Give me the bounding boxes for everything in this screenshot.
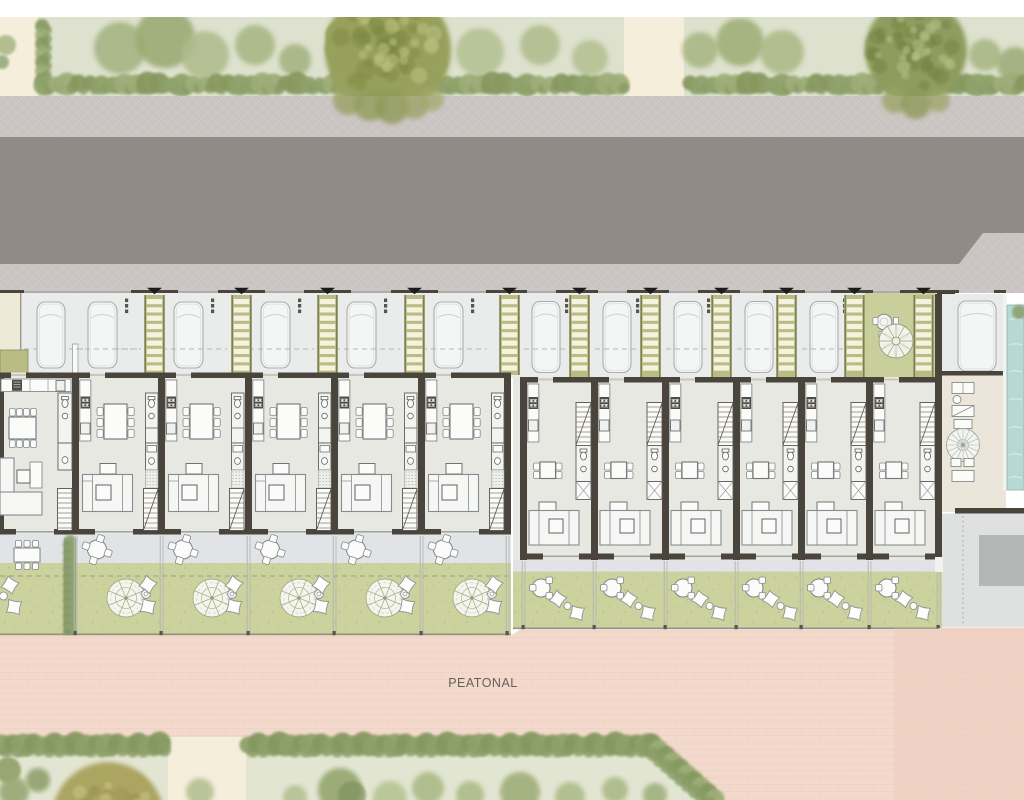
svg-text:PEATONAL: PEATONAL <box>448 676 518 690</box>
